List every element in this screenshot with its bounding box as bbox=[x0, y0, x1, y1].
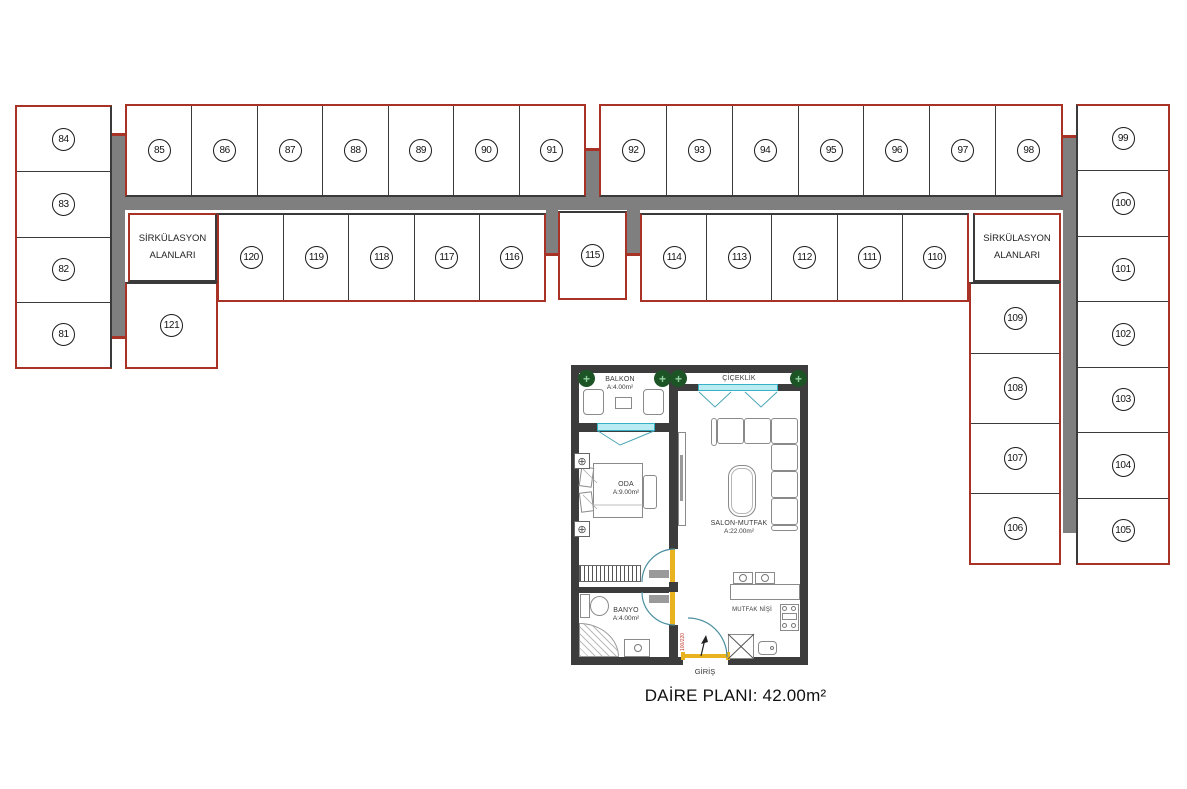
door-lintel bbox=[649, 595, 669, 603]
unit-cell: 114 bbox=[642, 215, 706, 300]
bed-pillow bbox=[579, 491, 594, 512]
unit-number: 111 bbox=[858, 246, 881, 269]
coffee-table-inner bbox=[731, 468, 753, 514]
bedroom-door-leaf bbox=[670, 549, 675, 582]
unit-number: 108 bbox=[1004, 377, 1027, 400]
bathroom-area: A:4.00m² bbox=[601, 615, 651, 623]
unit-block-115: 115 bbox=[558, 211, 627, 300]
unit-cell: 104 bbox=[1078, 432, 1168, 497]
bathroom-door-leaf bbox=[670, 592, 675, 625]
entrance-arrow-head bbox=[701, 635, 708, 644]
wall-divider-lower bbox=[669, 625, 678, 657]
unit-number: 101 bbox=[1112, 258, 1135, 281]
unit-number: 121 bbox=[160, 314, 183, 337]
balcony-area: A:4.00m² bbox=[585, 384, 655, 392]
corridor-horizontal bbox=[112, 197, 1076, 210]
unit-cell: 116 bbox=[479, 215, 544, 300]
unit-cell: 101 bbox=[1078, 236, 1168, 301]
unit-number: 116 bbox=[500, 246, 523, 269]
kitchen-label: MUTFAK NİŞİ bbox=[721, 607, 783, 615]
sink-faucet bbox=[770, 646, 774, 650]
unit-number: 82 bbox=[52, 258, 75, 281]
unit-cell: 92 bbox=[601, 106, 666, 195]
unit-block-right-column: 99 100 101 102 103 104 105 bbox=[1076, 104, 1170, 565]
unit-cell: 117 bbox=[414, 215, 479, 300]
wall-top bbox=[571, 365, 808, 373]
corridor-cap bbox=[112, 133, 125, 136]
bedroom-area: A:9.00m² bbox=[596, 489, 656, 497]
unit-number: 102 bbox=[1112, 323, 1135, 346]
flowerbed-label: ÇİÇEKLİK bbox=[678, 374, 800, 383]
livingroom-name: SALON-MUTFAK bbox=[693, 519, 785, 528]
balcony-name: BALKON bbox=[585, 375, 655, 384]
door-lintel bbox=[649, 570, 669, 578]
unit-number: 84 bbox=[52, 128, 75, 151]
unit-cell: 106 bbox=[971, 493, 1059, 563]
entrance-label: GİRİŞ bbox=[681, 667, 729, 676]
unit-number: 93 bbox=[688, 139, 711, 162]
unit-cell: 87 bbox=[257, 106, 322, 195]
corridor-cap bbox=[1063, 135, 1076, 138]
corridor-cap bbox=[586, 148, 599, 151]
kitchen-counter bbox=[730, 584, 800, 600]
unit-cell: 99 bbox=[1078, 106, 1168, 170]
balcony-label: BALKON A:4.00m² bbox=[585, 375, 655, 393]
unit-number: 96 bbox=[885, 139, 908, 162]
unit-number: 100 bbox=[1112, 192, 1135, 215]
balcony-door-swing bbox=[598, 431, 654, 445]
unit-cell: 85 bbox=[127, 106, 191, 195]
unit-number: 85 bbox=[148, 139, 171, 162]
unit-cell: 93 bbox=[666, 106, 732, 195]
unit-number: 115 bbox=[581, 244, 604, 267]
unit-number: 99 bbox=[1112, 127, 1135, 150]
bar-stool-seat bbox=[739, 574, 747, 582]
entrance-jamb bbox=[681, 652, 685, 660]
washing-machine-door bbox=[634, 644, 642, 652]
circulation-area-right: SİRKÜLASYON ALANLARI bbox=[973, 213, 1061, 282]
shower bbox=[579, 623, 619, 657]
unit-block-row2-right: 114 113 112 111 110 bbox=[640, 213, 969, 302]
corridor-left-strip bbox=[112, 136, 125, 336]
kitchen-name: MUTFAK NİŞİ bbox=[721, 607, 783, 615]
tree-icon bbox=[654, 370, 671, 387]
unit-cell: 100 bbox=[1078, 170, 1168, 235]
unit-cell: 108 bbox=[971, 353, 1059, 423]
unit-cell: 94 bbox=[732, 106, 798, 195]
corridor-right-strip bbox=[1063, 138, 1076, 533]
circulation-label-line2: ALANLARI bbox=[150, 248, 196, 264]
unit-cell: 82 bbox=[17, 237, 110, 302]
unit-block-inner-right-column: 109 108 107 106 bbox=[969, 282, 1061, 565]
bar-stool-seat bbox=[761, 574, 769, 582]
unit-number: 112 bbox=[793, 246, 816, 269]
radiator-icon: ⊕ bbox=[574, 521, 590, 537]
unit-number: 89 bbox=[409, 139, 432, 162]
toilet-tank bbox=[580, 594, 590, 618]
circulation-label-line1: SİRKÜLASYON bbox=[139, 231, 207, 247]
unit-cell: 107 bbox=[971, 423, 1059, 493]
site-plan-drawing: 84 83 82 81 85 86 87 88 89 90 91 92 93 9… bbox=[0, 0, 1187, 789]
corridor-115-left bbox=[546, 210, 558, 253]
window-swing bbox=[699, 392, 731, 407]
unit-number: 88 bbox=[344, 139, 367, 162]
unit-block-121: 121 bbox=[125, 282, 218, 369]
unit-cell: 110 bbox=[902, 215, 967, 300]
unit-number: 113 bbox=[728, 246, 751, 269]
balcony-table bbox=[615, 397, 632, 409]
unit-cell: 88 bbox=[322, 106, 387, 195]
wardrobe bbox=[579, 565, 641, 582]
unit-block-top-right: 92 93 94 95 96 97 98 bbox=[599, 104, 1063, 197]
unit-cell: 112 bbox=[771, 215, 836, 300]
sofa-seat bbox=[771, 444, 798, 471]
unit-number: 95 bbox=[820, 139, 843, 162]
wall-divider-upper bbox=[669, 373, 678, 549]
corridor-cap bbox=[546, 253, 558, 256]
livingroom-area: A:22.00m² bbox=[693, 528, 785, 536]
unit-number: 91 bbox=[540, 139, 563, 162]
unit-block-left-column: 84 83 82 81 bbox=[15, 105, 112, 369]
unit-number: 107 bbox=[1004, 447, 1027, 470]
unit-number: 83 bbox=[52, 193, 75, 216]
unit-number: 106 bbox=[1004, 517, 1027, 540]
bathroom-label: BANYO A:4.00m² bbox=[601, 606, 651, 624]
unit-number: 119 bbox=[305, 246, 328, 269]
unit-number: 92 bbox=[622, 139, 645, 162]
unit-number: 120 bbox=[240, 246, 263, 269]
entrance-door-arc bbox=[688, 618, 727, 657]
circulation-label-line1: SİRKÜLASYON bbox=[983, 231, 1051, 247]
radiator-icon: ⊕ bbox=[574, 453, 590, 469]
unit-cell: 83 bbox=[17, 171, 110, 236]
unit-number: 97 bbox=[951, 139, 974, 162]
unit-cell: 102 bbox=[1078, 301, 1168, 366]
window-swing bbox=[745, 392, 777, 407]
stove-burner bbox=[791, 606, 796, 611]
balcony-armchair bbox=[643, 389, 664, 415]
oven-door bbox=[782, 613, 797, 620]
bedroom-label: ODA A:9.00m² bbox=[596, 480, 656, 498]
unit-number: 117 bbox=[435, 246, 458, 269]
unit-number: 90 bbox=[475, 139, 498, 162]
unit-number: 86 bbox=[213, 139, 236, 162]
unit-number: 81 bbox=[52, 323, 75, 346]
unit-cell: 86 bbox=[191, 106, 256, 195]
unit-cell: 96 bbox=[863, 106, 929, 195]
livingroom-label: SALON-MUTFAK A:22.00m² bbox=[693, 519, 785, 537]
unit-cell: 81 bbox=[17, 302, 110, 367]
unit-cell: 97 bbox=[929, 106, 995, 195]
tv-unit-panel bbox=[680, 455, 683, 501]
unit-number: 118 bbox=[370, 246, 393, 269]
wall-hall-bath bbox=[579, 587, 669, 593]
sofa-corner bbox=[771, 418, 798, 444]
circulation-area-left: SİRKÜLASYON ALANLARI bbox=[128, 213, 217, 282]
unit-cell: 113 bbox=[706, 215, 771, 300]
entrance-jamb bbox=[726, 652, 730, 660]
wall-left bbox=[571, 365, 579, 665]
unit-block-row2-left: 120 119 118 117 116 bbox=[217, 213, 546, 302]
wall-bottom-left bbox=[571, 657, 683, 665]
unit-number: 104 bbox=[1112, 454, 1135, 477]
unit-cell: 84 bbox=[17, 107, 110, 171]
unit-cell: 89 bbox=[388, 106, 453, 195]
corridor-cap bbox=[112, 336, 125, 339]
bedroom-name: ODA bbox=[596, 480, 656, 489]
unit-cell: 98 bbox=[995, 106, 1061, 195]
unit-number: 94 bbox=[754, 139, 777, 162]
bed-pillow bbox=[579, 466, 595, 488]
unit-cell: 121 bbox=[127, 284, 216, 367]
plan-caption: DAİRE PLANI: 42.00m² bbox=[600, 686, 871, 706]
sofa-seat bbox=[771, 471, 798, 498]
corridor-115-right bbox=[627, 210, 640, 253]
unit-cell: 115 bbox=[560, 213, 625, 298]
unit-number: 87 bbox=[279, 139, 302, 162]
circulation-label-line2: ALANLARI bbox=[994, 248, 1040, 264]
kitchen-sink bbox=[758, 641, 777, 655]
flowerbed-name: ÇİÇEKLİK bbox=[678, 374, 800, 383]
balcony-door-window bbox=[597, 423, 655, 431]
corridor-cap bbox=[627, 253, 640, 256]
unit-cell: 95 bbox=[798, 106, 864, 195]
unit-cell: 111 bbox=[837, 215, 902, 300]
sofa-seat bbox=[717, 418, 744, 444]
unit-block-top-left: 85 86 87 88 89 90 91 bbox=[125, 104, 586, 197]
stove-burner bbox=[791, 623, 796, 628]
entrance-threshold bbox=[683, 654, 728, 658]
wall-divider-mid bbox=[669, 582, 678, 592]
unit-cell: 105 bbox=[1078, 498, 1168, 563]
unit-cell: 90 bbox=[453, 106, 518, 195]
unit-number: 103 bbox=[1112, 388, 1135, 411]
unit-number: 105 bbox=[1112, 519, 1135, 542]
unit-cell: 103 bbox=[1078, 367, 1168, 432]
unit-number: 109 bbox=[1004, 307, 1027, 330]
apartment-plan: ⊕ ⊕ bbox=[571, 365, 808, 665]
unit-cell: 91 bbox=[519, 106, 584, 195]
unit-cell: 119 bbox=[283, 215, 348, 300]
bathroom-name: BANYO bbox=[601, 606, 651, 615]
unit-number: 98 bbox=[1017, 139, 1040, 162]
unit-cell: 109 bbox=[971, 284, 1059, 353]
livingroom-window bbox=[698, 384, 778, 391]
corridor-mid-connector bbox=[586, 151, 599, 197]
unit-number: 110 bbox=[923, 246, 946, 269]
stove-burner bbox=[782, 623, 787, 628]
wall-right bbox=[800, 365, 808, 665]
balcony-armchair bbox=[583, 389, 604, 415]
sofa-seat bbox=[744, 418, 771, 444]
unit-cell: 118 bbox=[348, 215, 413, 300]
appliance-space bbox=[728, 634, 754, 659]
door-size-label: 100/220 bbox=[680, 633, 686, 651]
unit-cell: 120 bbox=[219, 215, 283, 300]
unit-number: 114 bbox=[663, 246, 686, 269]
